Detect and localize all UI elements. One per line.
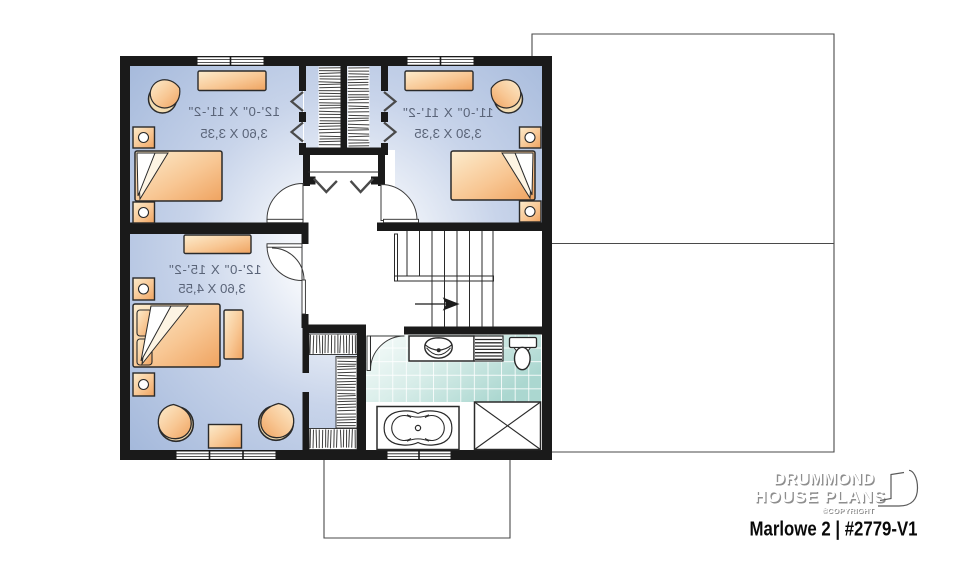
svg-text:HOUSE PLANS: HOUSE PLANS bbox=[754, 487, 886, 506]
svg-text:12'-0" X 15'-2": 12'-0" X 15'-2" bbox=[168, 262, 261, 277]
svg-text:©COPYRIGHT: ©COPYRIGHT bbox=[822, 506, 874, 515]
svg-text:3,30 X 3,35: 3,30 X 3,35 bbox=[414, 126, 481, 141]
svg-text:DRUMMOND: DRUMMOND bbox=[773, 470, 874, 488]
svg-text:Marlowe 2 | #2779-V1: Marlowe 2 | #2779-V1 bbox=[750, 518, 918, 541]
svg-text:3,60 X 4,55: 3,60 X 4,55 bbox=[178, 281, 245, 296]
svg-text:12'-0" X 11'-2": 12'-0" X 11'-2" bbox=[188, 104, 280, 119]
svg-text:11'-0" X 11'-2": 11'-0" X 11'-2" bbox=[402, 105, 493, 120]
svg-text:3,60 X 3,35: 3,60 X 3,35 bbox=[200, 126, 267, 141]
